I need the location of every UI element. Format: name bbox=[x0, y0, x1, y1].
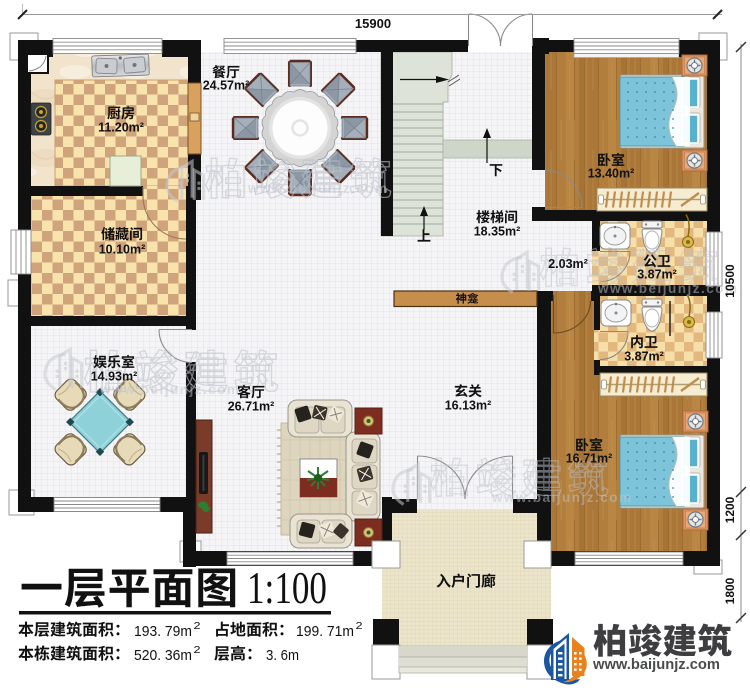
svg-text:10.10m²: 10.10m² bbox=[99, 243, 146, 257]
svg-text:www.beijunjz.com: www.beijunjz.com bbox=[99, 382, 241, 397]
svg-text:13.40m²: 13.40m² bbox=[588, 167, 635, 181]
svg-text:24.57m²: 24.57m² bbox=[203, 79, 250, 93]
svg-text:3.87m²: 3.87m² bbox=[624, 350, 664, 364]
svg-text:1800: 1800 bbox=[723, 577, 737, 604]
svg-text:www.baijunjz.com: www.baijunjz.com bbox=[592, 656, 720, 673]
svg-text:www.beijunjz.com: www.beijunjz.com bbox=[597, 281, 739, 296]
svg-text:193. 79m: 193. 79m bbox=[134, 623, 192, 640]
svg-text:18.35m²: 18.35m² bbox=[474, 225, 521, 239]
svg-text:www.baijunjz.com: www.baijunjz.com bbox=[491, 490, 633, 505]
svg-text:14.93m²: 14.93m² bbox=[91, 370, 138, 384]
svg-text:2.03m²: 2.03m² bbox=[548, 257, 588, 271]
svg-text:10500: 10500 bbox=[723, 264, 737, 298]
svg-text:11.20m²: 11.20m² bbox=[98, 121, 144, 135]
svg-text:199. 71m: 199. 71m bbox=[296, 623, 354, 640]
svg-text:2: 2 bbox=[194, 621, 202, 632]
svg-text:1200: 1200 bbox=[723, 496, 737, 523]
svg-text:www.beijunjz.com: www.beijunjz.com bbox=[247, 181, 389, 196]
svg-text:3.87m²: 3.87m² bbox=[637, 268, 677, 282]
svg-text:3. 6m: 3. 6m bbox=[266, 647, 299, 664]
svg-text:16.13m²: 16.13m² bbox=[445, 399, 492, 413]
svg-text:1:100: 1:100 bbox=[247, 563, 327, 613]
svg-text:2: 2 bbox=[356, 621, 364, 632]
svg-text:15900: 15900 bbox=[355, 16, 391, 31]
svg-text:2: 2 bbox=[194, 645, 202, 656]
svg-text:520. 36m: 520. 36m bbox=[134, 647, 192, 664]
svg-text:16.71m²: 16.71m² bbox=[566, 452, 613, 466]
svg-text:26.71m²: 26.71m² bbox=[228, 400, 275, 414]
